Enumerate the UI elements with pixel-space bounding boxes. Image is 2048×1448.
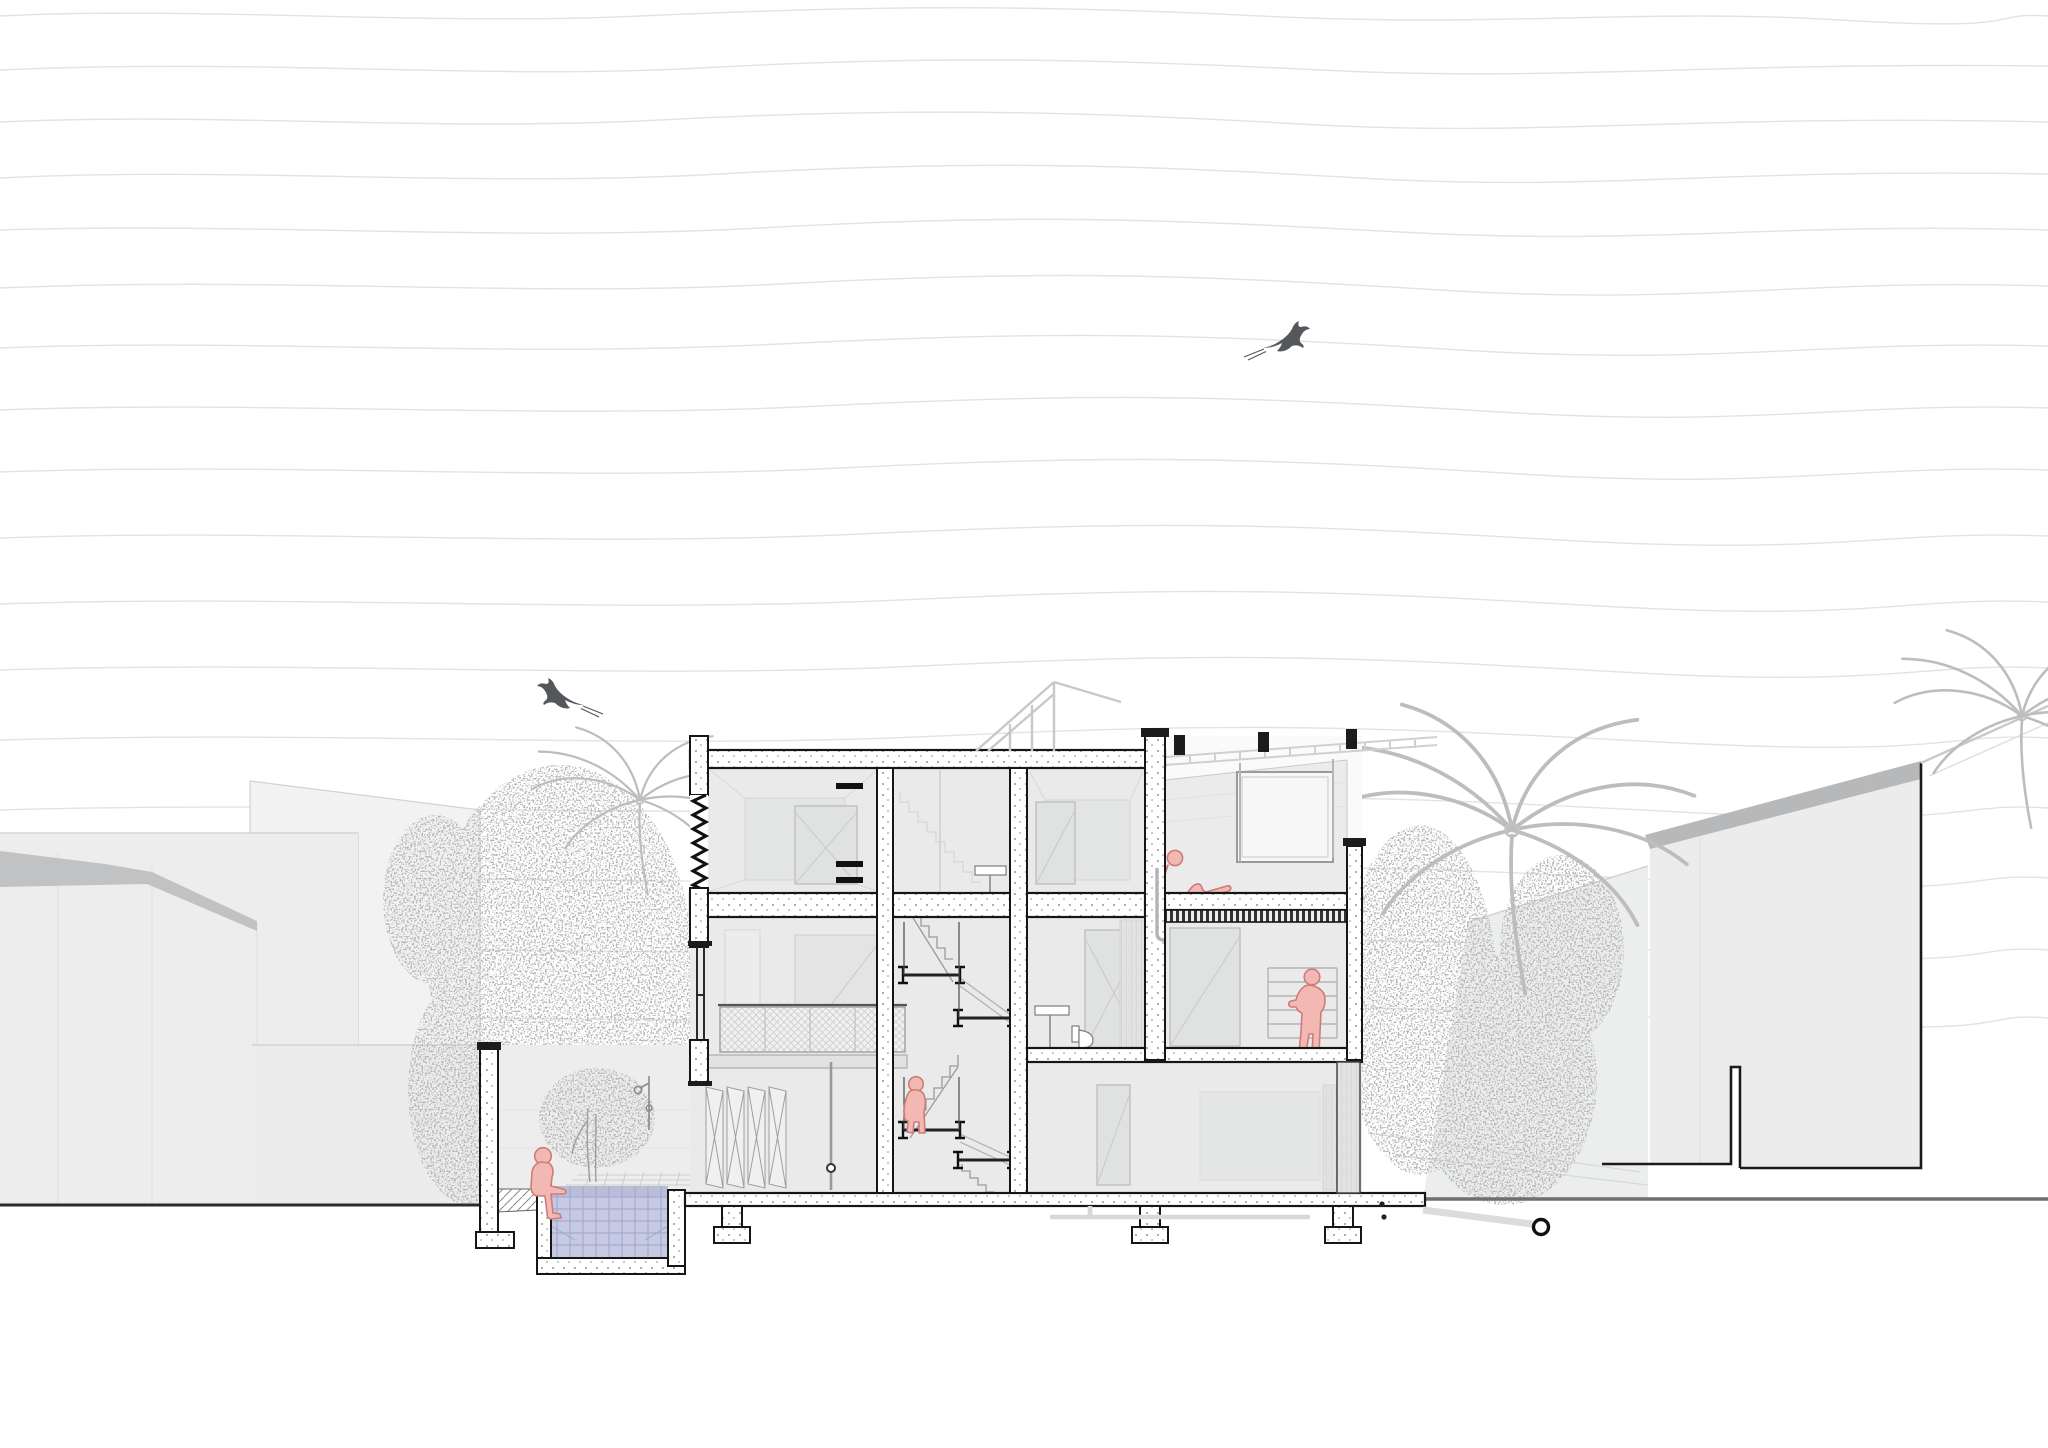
ground-hatch	[498, 1189, 537, 1212]
architectural-section-canvas	[0, 0, 2048, 1448]
pool-floor	[537, 1258, 685, 1274]
door-top-right	[1036, 802, 1075, 884]
sink	[1035, 1006, 1069, 1015]
stair-wall-left	[877, 768, 893, 1193]
left-parapet	[690, 736, 708, 795]
middle-floor-slab	[1027, 1048, 1362, 1062]
drain-pipes	[1050, 1206, 1310, 1217]
left-wall-pier	[690, 1040, 708, 1085]
ground-wall-right	[1337, 1062, 1360, 1193]
pool	[537, 1183, 685, 1274]
outlet-pipe	[1423, 1210, 1532, 1224]
terrace-wall	[1145, 736, 1165, 1060]
skylight-truss	[976, 682, 1121, 751]
courtyard	[476, 1042, 710, 1274]
foundations	[714, 1201, 1549, 1243]
left-wall-upper	[690, 888, 708, 947]
roof-slab	[690, 750, 1165, 768]
terrace-parapet-right	[1347, 846, 1362, 1060]
door-ground-centre	[1097, 1085, 1130, 1185]
terrace-slab	[1165, 893, 1362, 910]
pool-wall-right	[668, 1190, 685, 1266]
second-floor-slab	[690, 893, 1145, 917]
swallow-lower-sky	[537, 678, 603, 717]
door-top-left	[795, 806, 857, 884]
ground-slab	[685, 1193, 1425, 1206]
terrace-slab-soffit	[1165, 910, 1362, 922]
stair-wall-right	[1010, 768, 1027, 1193]
section-drawing	[0, 0, 2048, 1448]
terrace-window	[1237, 772, 1333, 862]
door-middle-right	[1170, 928, 1240, 1046]
outlet-ring	[1534, 1220, 1549, 1235]
